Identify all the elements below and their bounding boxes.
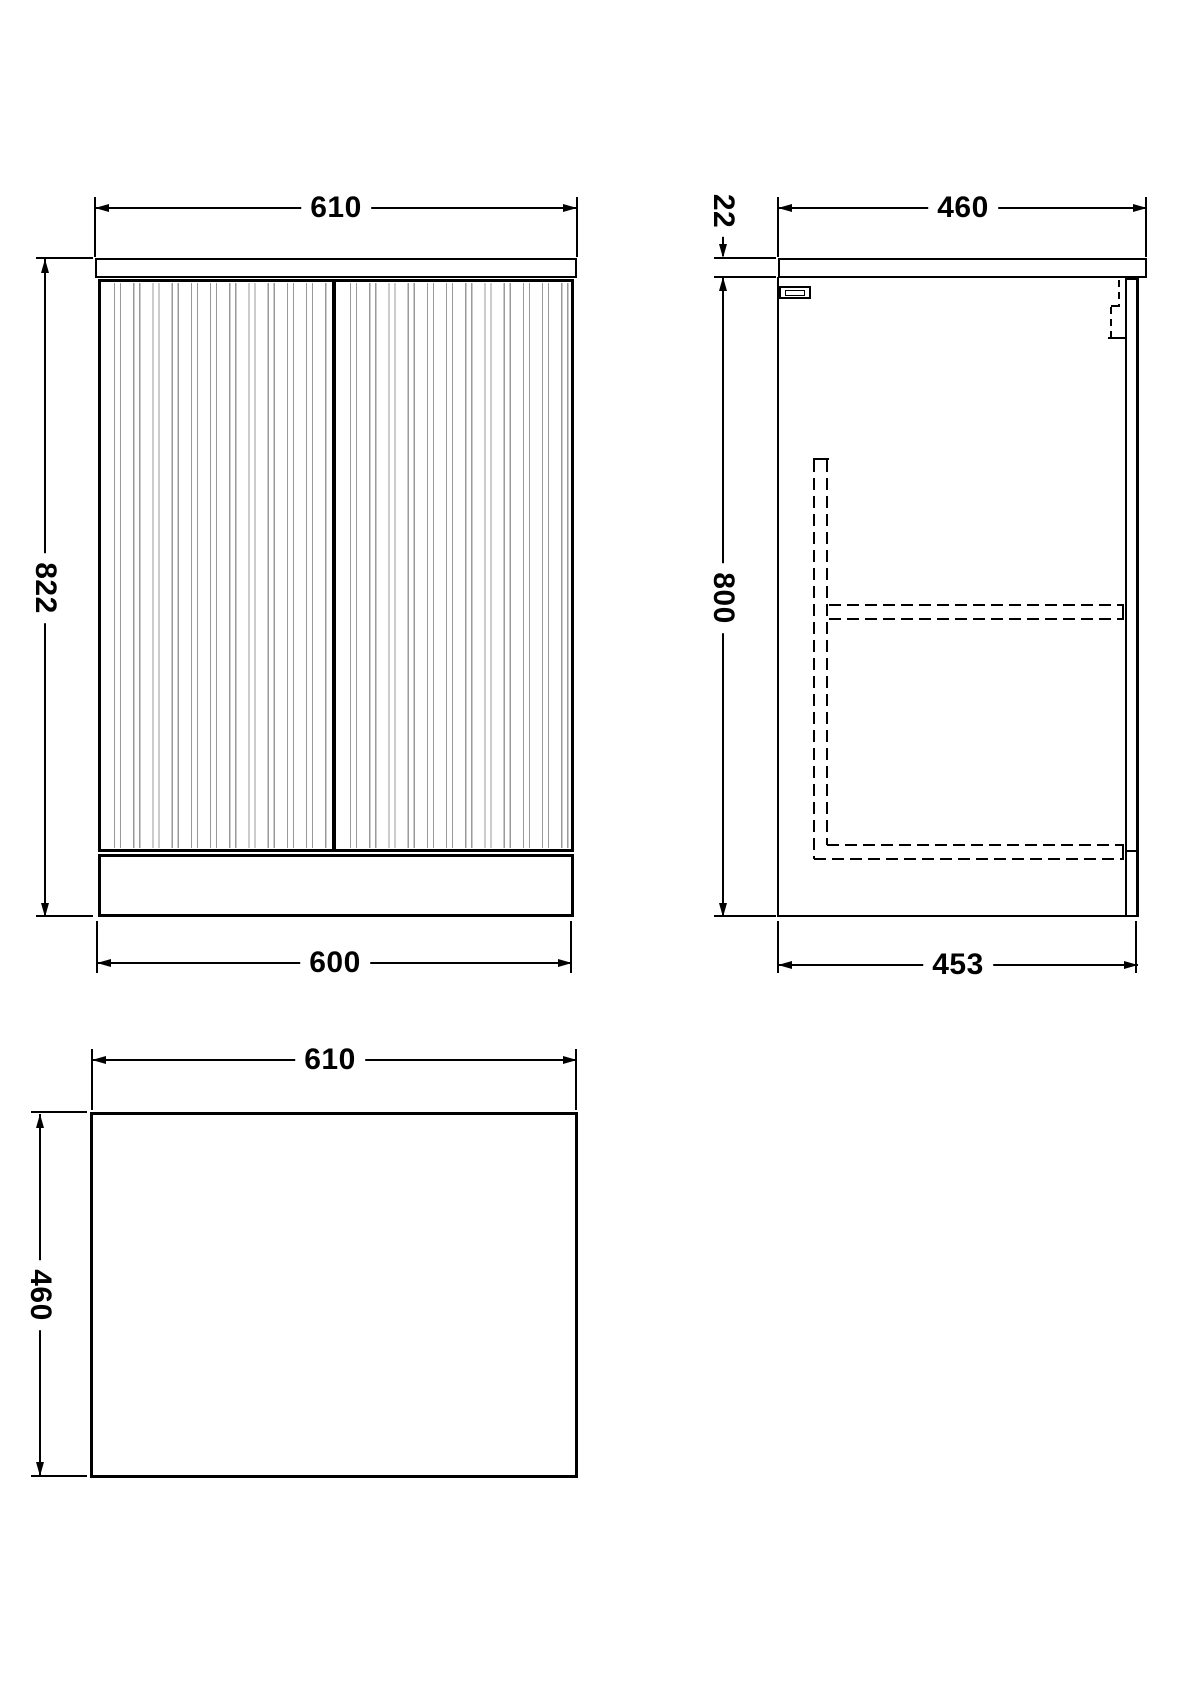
front-door-divider-line (332, 281, 336, 850)
front-door-left-fluting (102, 283, 330, 848)
side-shelf-upper-end-line (1122, 604, 1124, 620)
plan-dim-depth-ext-top-line (31, 1111, 87, 1113)
plan-worktop-outline (90, 1112, 578, 1478)
side-dim-bottom-arrow-left-icon (778, 961, 792, 969)
side-door-back-line (1125, 279, 1127, 917)
side-worktop (778, 258, 1147, 278)
side-void-dashed-left-line (813, 460, 815, 859)
front-door-right-fluting (338, 283, 570, 848)
front-dim-height-arrow-up-icon (41, 259, 49, 273)
front-dim-height-arrow-down-icon (41, 903, 49, 917)
plan-dim-depth-arrow-down-icon (36, 1462, 44, 1476)
side-dim-bottom-arrow-right-icon (1124, 961, 1138, 969)
plan-dim-depth-label: 460 (24, 1260, 56, 1330)
plan-dim-width-label: 610 (295, 1044, 365, 1076)
side-dim-height-ext-bottom-line (714, 915, 776, 917)
side-dim-thickness-arrow-down-icon (719, 244, 727, 258)
side-shelf-lower-top-dashed-line (827, 844, 1123, 846)
side-door-front-line (1136, 279, 1139, 917)
side-back-panel-line (777, 277, 779, 917)
side-hinge-dashed-lower-line (1110, 307, 1112, 337)
front-worktop (95, 258, 577, 278)
front-dim-bottom-arrow-left-icon (97, 959, 111, 967)
side-hinge-step-tick-1 (1111, 305, 1120, 307)
side-door-bottom-tick-line (1125, 850, 1139, 852)
front-plinth (98, 854, 574, 917)
technical-drawing-canvas: 610 822 600 460 (0, 0, 1190, 1684)
front-dim-width-arrow-left-icon (95, 204, 109, 212)
front-dim-width-label: 610 (301, 192, 371, 224)
side-dim-height-label: 800 (707, 563, 739, 633)
side-shelf-lower-bottom-dashed-line (814, 858, 1123, 860)
side-shelf-lower-end-line (1122, 844, 1124, 860)
side-dim-depth-arrow-right-icon (1133, 204, 1147, 212)
front-dim-height-label: 822 (29, 553, 61, 623)
side-hinge-dashed-upper-line (1118, 280, 1120, 306)
side-dim-bottom-label: 453 (923, 949, 993, 981)
side-shelf-upper-top-dashed-line (829, 604, 1123, 606)
side-dim-depth-arrow-left-icon (778, 204, 792, 212)
side-void-dashed-right-line (826, 460, 828, 845)
plan-dim-width-arrow-right-icon (563, 1056, 577, 1064)
front-dim-width-arrow-right-icon (563, 204, 577, 212)
side-fixing-clip-inner (785, 290, 805, 296)
side-door-top-edge-line (1125, 278, 1139, 280)
plan-dim-width-arrow-left-icon (92, 1056, 106, 1064)
side-hinge-step-tick-2 (1108, 337, 1126, 339)
front-dim-bottom-label: 600 (300, 947, 370, 979)
side-dim-depth-label: 460 (928, 192, 998, 224)
side-bottom-line (778, 915, 1139, 917)
plan-dim-depth-arrow-up-icon (36, 1114, 44, 1128)
front-dim-bottom-arrow-right-icon (558, 959, 572, 967)
side-dim-thickness-label: 22 (707, 185, 739, 237)
side-shelf-upper-bottom-dashed-line (829, 618, 1123, 620)
